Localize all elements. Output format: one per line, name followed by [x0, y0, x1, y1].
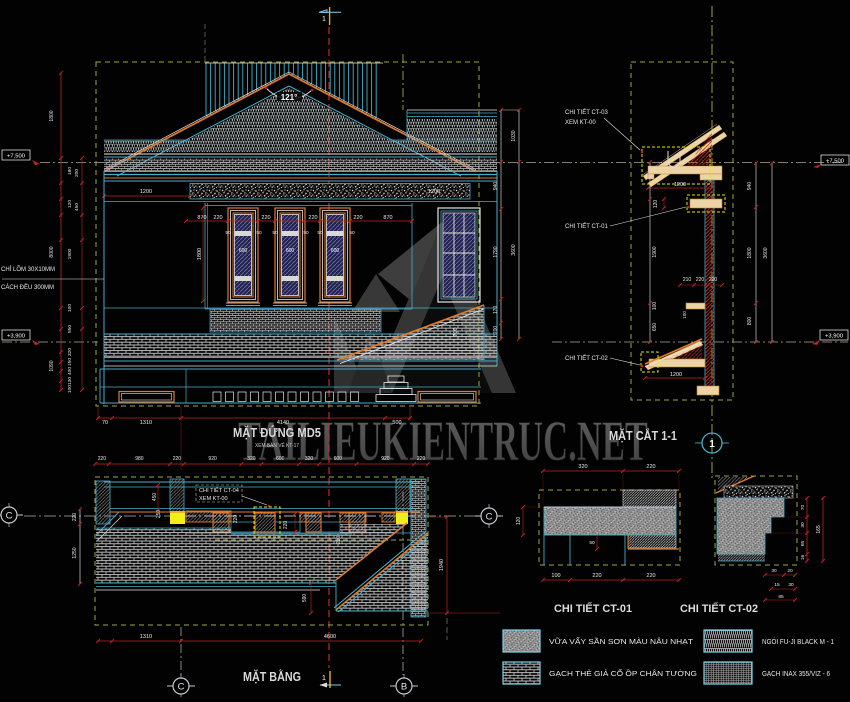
svg-text:100: 100: [67, 385, 73, 393]
svg-text:130: 130: [67, 377, 73, 385]
svg-text:210: 210: [336, 536, 342, 545]
svg-text:B: B: [401, 681, 407, 692]
svg-text:210: 210: [683, 277, 692, 283]
svg-text:121°: 121°: [281, 93, 298, 102]
svg-text:220: 220: [353, 215, 362, 221]
svg-text:220: 220: [261, 215, 270, 221]
svg-text:100: 100: [652, 302, 658, 311]
svg-text:1790: 1790: [493, 246, 499, 257]
svg-text:220: 220: [592, 573, 601, 579]
svg-text:1200: 1200: [428, 189, 440, 195]
svg-text:50: 50: [225, 230, 231, 236]
svg-text:220: 220: [233, 515, 239, 524]
svg-text:650: 650: [652, 323, 658, 332]
svg-text:1800: 1800: [197, 248, 203, 260]
svg-text:220: 220: [646, 464, 655, 470]
svg-text:100: 100: [67, 304, 73, 312]
svg-text:8000: 8000: [49, 246, 55, 257]
svg-text:CHI TIẾT CT-01: CHI TIẾT CT-01: [565, 223, 608, 230]
svg-text:CÁCH ĐỀU 300MM: CÁCH ĐỀU 300MM: [1, 284, 54, 291]
svg-text:150: 150: [67, 358, 73, 366]
svg-text:120: 120: [516, 517, 522, 526]
svg-text:+7,500: +7,500: [7, 154, 25, 160]
svg-text:1030: 1030: [511, 130, 517, 141]
svg-text:120: 120: [67, 200, 73, 208]
svg-text:CHI TIẾT CT-03: CHI TIẾT CT-03: [565, 109, 608, 116]
svg-text:180: 180: [67, 167, 73, 175]
svg-text:CHỈ LÕM 30X10MM: CHỈ LÕM 30X10MM: [1, 266, 55, 273]
svg-text:220: 220: [308, 215, 317, 221]
svg-text:800: 800: [747, 317, 753, 326]
svg-text:220: 220: [696, 277, 705, 283]
svg-text:120: 120: [653, 200, 659, 209]
svg-text:400: 400: [67, 367, 73, 375]
svg-text:1200: 1200: [670, 372, 682, 378]
svg-text:600: 600: [334, 456, 343, 462]
svg-text:320: 320: [305, 456, 314, 462]
svg-text:XEM BẢN VẺ KT-17: XEM BẢN VẺ KT-17: [255, 442, 299, 449]
svg-text:590: 590: [302, 594, 308, 603]
svg-text:700: 700: [453, 327, 459, 336]
svg-text:320: 320: [67, 348, 73, 356]
svg-text:50: 50: [256, 230, 262, 236]
svg-text:920: 920: [381, 456, 390, 462]
svg-text:980: 980: [135, 456, 144, 462]
svg-text:600: 600: [331, 248, 340, 254]
svg-text:1250: 1250: [72, 547, 78, 558]
svg-text:450: 450: [152, 493, 158, 502]
svg-text:85: 85: [778, 594, 784, 600]
svg-text:940: 940: [493, 182, 499, 191]
svg-text:920: 920: [208, 456, 217, 462]
svg-text:3600: 3600: [763, 247, 769, 258]
svg-text:220: 220: [173, 456, 182, 462]
svg-text:70: 70: [102, 420, 108, 426]
svg-text:30: 30: [771, 568, 777, 574]
svg-text:70: 70: [800, 505, 806, 511]
svg-text:1800: 1800: [747, 247, 753, 258]
svg-text:3600: 3600: [511, 244, 517, 255]
svg-text:CHI TIẾT CT-02: CHI TIẾT CT-02: [680, 602, 758, 615]
svg-text:1800: 1800: [49, 110, 55, 121]
svg-text:870: 870: [197, 215, 206, 221]
svg-text:65: 65: [800, 541, 806, 547]
svg-text:50: 50: [272, 230, 278, 236]
svg-text:1900: 1900: [652, 246, 658, 257]
svg-text:220: 220: [417, 456, 426, 462]
svg-text:30: 30: [800, 522, 806, 528]
svg-text:1310: 1310: [140, 420, 152, 426]
svg-text:C: C: [486, 511, 493, 522]
svg-text:30: 30: [788, 582, 794, 588]
svg-text:MẶT ĐỨNG MD5: MẶT ĐỨNG MD5: [233, 425, 321, 440]
svg-text:20: 20: [787, 568, 793, 574]
svg-text:+7,500: +7,500: [826, 159, 844, 165]
svg-text:50: 50: [317, 230, 323, 236]
svg-text:XEM KT-00: XEM KT-00: [565, 120, 596, 126]
svg-text:220: 220: [98, 456, 107, 462]
svg-text:1900: 1900: [67, 248, 73, 259]
svg-text:450: 450: [74, 203, 80, 211]
svg-text:C: C: [6, 510, 13, 521]
svg-text:600: 600: [286, 248, 295, 254]
svg-text:100: 100: [682, 311, 687, 319]
svg-text:CHI TIẾT CT-04: CHI TIẾT CT-04: [199, 487, 239, 494]
svg-text:600: 600: [276, 456, 285, 462]
svg-text:220: 220: [709, 277, 718, 283]
svg-text:16: 16: [800, 555, 806, 561]
svg-text:MẶT BẰNG: MẶT BẰNG: [243, 669, 301, 684]
svg-text:220: 220: [72, 513, 78, 522]
svg-text:250: 250: [156, 510, 162, 519]
svg-text:50: 50: [349, 230, 355, 236]
svg-text:170: 170: [493, 306, 499, 315]
svg-text:NGÓI FU-JI BLACK M - 1: NGÓI FU-JI BLACK M - 1: [762, 637, 834, 646]
svg-text:XEM KT-00: XEM KT-00: [199, 496, 228, 502]
svg-text:4600: 4600: [324, 634, 336, 640]
svg-text:CHI TIẾT CT-01: CHI TIẾT CT-01: [554, 602, 632, 615]
svg-text:600: 600: [239, 248, 248, 254]
svg-text:320: 320: [247, 456, 256, 462]
svg-text:165: 165: [816, 525, 822, 534]
svg-text:200: 200: [74, 169, 80, 177]
svg-text:+3,900: +3,900: [825, 334, 843, 340]
svg-text:700: 700: [493, 326, 499, 335]
svg-text:220: 220: [646, 573, 655, 579]
svg-text:1310: 1310: [140, 634, 152, 640]
svg-text:870: 870: [383, 215, 392, 221]
svg-text:+3,900: +3,900: [7, 334, 25, 340]
svg-text:GẠCH INAX 355/VIZ - 6: GẠCH INAX 355/VIZ - 6: [762, 671, 830, 678]
svg-text:1940: 1940: [439, 559, 445, 571]
svg-text:C: C: [178, 681, 185, 692]
svg-text:50: 50: [589, 540, 595, 546]
svg-text:CHI TIẾT CT-02: CHI TIẾT CT-02: [565, 355, 608, 362]
svg-text:1: 1: [322, 16, 326, 23]
svg-text:550: 550: [67, 325, 73, 333]
svg-text:1090: 1090: [49, 360, 55, 371]
svg-text:1200: 1200: [674, 182, 686, 188]
svg-text:500: 500: [392, 420, 401, 426]
svg-text:1: 1: [322, 675, 326, 682]
svg-text:1200: 1200: [140, 189, 152, 195]
svg-text:220: 220: [283, 521, 289, 530]
svg-text:50: 50: [303, 230, 309, 236]
svg-text:320: 320: [578, 464, 587, 470]
svg-text:1: 1: [709, 439, 715, 450]
svg-text:100: 100: [551, 573, 560, 579]
svg-text:220: 220: [213, 215, 222, 221]
svg-text:15: 15: [774, 582, 780, 588]
svg-text:940: 940: [747, 182, 753, 191]
svg-text:MẶT CẮT 1-1: MẶT CẮT 1-1: [609, 428, 677, 443]
